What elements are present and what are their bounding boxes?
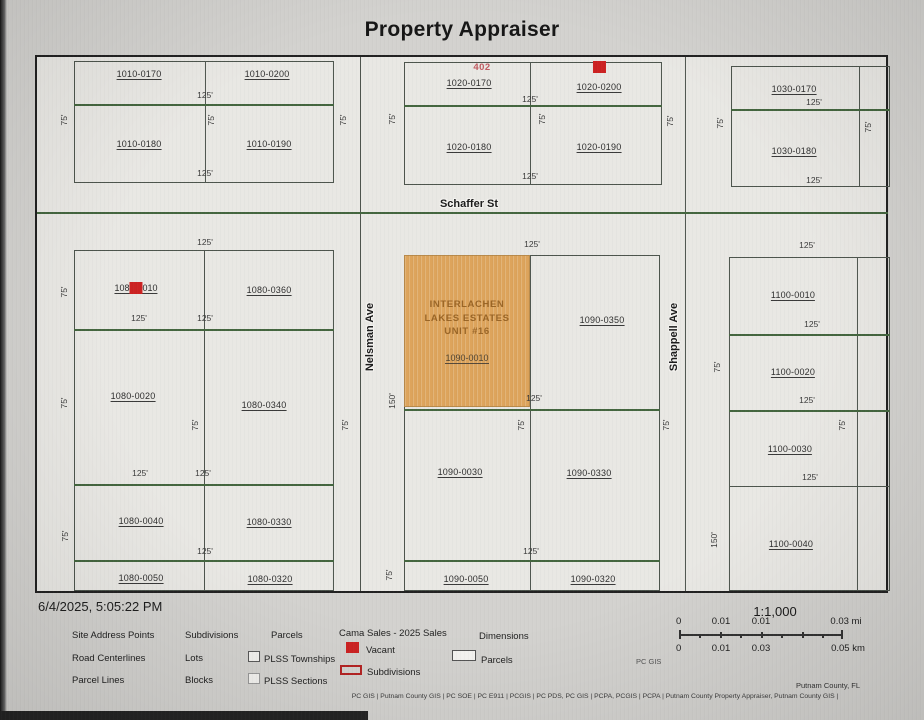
scale-bar [679, 630, 843, 642]
parcel-label-1010-0180: 1010-0180 [117, 139, 162, 150]
lot-divider [530, 255, 531, 591]
data-credits: PC GIS | Putnam County GIS | PC SOE | PC… [325, 693, 865, 700]
dimension-label: 75' [665, 115, 675, 126]
plss-townships-swatch [248, 651, 260, 662]
dimension-label: 75' [206, 114, 216, 125]
scale-tick-label: 0.03 [752, 643, 771, 654]
dimension-label: 125' [197, 313, 213, 323]
legend-plss-townships: PLSS Townships [264, 654, 335, 665]
dimension-label: 75' [384, 569, 394, 580]
dimension-label: 125' [197, 90, 213, 100]
parcel-label-1100-0030: 1100-0030 [768, 444, 812, 455]
dimension-label: 75' [712, 361, 722, 372]
dimension-label: 125' [197, 546, 213, 556]
legend-parcels-2: Parcels [481, 655, 513, 666]
dimension-label: 125' [195, 468, 211, 478]
dimension-label: 75' [59, 114, 69, 125]
dimension-label: 75' [190, 419, 200, 430]
dimension-label: 75' [661, 419, 671, 430]
lot-line-green [74, 329, 334, 331]
legend-dimensions: Dimensions [479, 631, 529, 642]
parcel-label-part: 010 [143, 283, 158, 293]
parcel-label-1080-0360: 1080-0360 [247, 285, 292, 296]
street-label-nelsman: Nelsman Ave [364, 303, 376, 371]
photo-edge-artifact [0, 711, 368, 720]
subdivisions-swatch [340, 665, 362, 675]
region-label: Putnam County, FL [745, 681, 860, 690]
parcel-label-1080-0020: 1080-0020 [111, 391, 156, 402]
dimension-label: 75' [338, 114, 348, 125]
parcel-label-1090-0330: 1090-0330 [567, 468, 612, 479]
dimension-label: 125' [806, 175, 822, 185]
legend-site-address-points: Site Address Points [72, 630, 154, 641]
dimension-label: 75' [340, 419, 350, 430]
dimension-label: 125' [197, 237, 213, 247]
parcels-swatch [452, 650, 476, 661]
dimension-label: 125' [523, 546, 539, 556]
parcel-label-1090-0320: 1090-0320 [571, 574, 616, 585]
parcel-label-1020-0200: 1020-0200 [577, 82, 622, 93]
dimension-label: 125' [522, 94, 538, 104]
lot-line-green [404, 560, 660, 562]
lot-line-green [404, 409, 660, 411]
lot-divider [530, 62, 531, 185]
dimension-label: 150' [387, 393, 397, 409]
vacant-swatch [346, 642, 359, 653]
lot-line-green [729, 334, 890, 336]
dimension-label: 125' [799, 240, 815, 250]
scale-tick-label: 0.01 [712, 616, 731, 627]
dimension-label: 125' [799, 395, 815, 405]
map-timestamp: 6/4/2025, 5:05:22 PM [38, 599, 162, 614]
scale-tick-label: 0 [676, 643, 681, 654]
parcel-label-1080-0340: 1080-0340 [242, 400, 287, 411]
scale-tick-label: 0.03 mi [830, 616, 861, 627]
dimension-label: 125' [802, 472, 818, 482]
dimension-label: 125' [197, 168, 213, 178]
block-outline-1020 [404, 62, 662, 185]
parcel-label-1090-0030: 1090-0030 [438, 467, 483, 478]
dimension-label: 75' [537, 113, 547, 124]
lot-divider [204, 250, 205, 591]
dimension-label: 75' [387, 113, 397, 124]
photo-edge-artifact [0, 0, 7, 720]
parcel-label-1010-0170: 1010-0170 [117, 69, 162, 80]
dimension-label: 75' [59, 397, 69, 408]
parcel-label-1030-0180: 1030-0180 [772, 146, 817, 157]
legend-cama-sales-header: Cama Sales - 2025 Sales [339, 628, 447, 639]
dimension-label: 125' [524, 239, 540, 249]
lot-line-green [74, 484, 334, 486]
dimension-label: 125' [132, 468, 148, 478]
dimension-label: 125' [804, 319, 820, 329]
parcel-label-1020-0180: 1020-0180 [447, 142, 492, 153]
parcel-label-1080-0320: 1080-0320 [248, 574, 293, 585]
lot-line [729, 486, 890, 487]
block-boundary-line [360, 57, 361, 591]
vacant-sale-marker [130, 282, 143, 294]
dimension-label: 75' [59, 286, 69, 297]
parcel-label-1090-0350: 1090-0350 [580, 315, 625, 326]
dimension-label: 150' [709, 532, 719, 548]
page-title: Property Appraiser [0, 18, 924, 42]
scale-tick-label: 0.01 [752, 616, 771, 627]
parcel-label-1090-0050: 1090-0050 [444, 574, 489, 585]
dimension-label: 125' [131, 313, 147, 323]
scale-tick-label: 0.01 [712, 643, 731, 654]
lot-line-green [731, 109, 890, 111]
parcel-label-part: 108 [114, 283, 129, 293]
dimension-label: 75' [837, 419, 847, 430]
subdivision-name-line: LAKES ESTATES [424, 312, 509, 326]
parcel-label-1100-0040: 1100-0040 [769, 539, 813, 550]
parcel-label-1010-0200: 1010-0200 [245, 69, 290, 80]
block-outline-1010 [74, 61, 334, 183]
legend-plss-sections: PLSS Sections [264, 676, 327, 687]
dimension-label: 75' [516, 419, 526, 430]
scale-tick-label: 0.05 km [831, 643, 865, 654]
parcel-label-1090-0010: 1090-0010 [445, 353, 488, 364]
gis-watermark: PC GIS [636, 657, 661, 666]
block-boundary-line [685, 57, 686, 591]
parcel-label-1080-0040: 1080-0040 [119, 516, 164, 527]
legend-road-centerlines: Road Centerlines [72, 653, 145, 664]
parcel-label-1080-0050: 1080-0050 [119, 573, 164, 584]
sale-number-label: 402 [473, 62, 490, 73]
map-canvas: Schaffer St Nelsman Ave Shappell Ave 101… [35, 55, 888, 593]
highlighted-subdivision-parcel: INTERLACHEN LAKES ESTATES UNIT #16 1090-… [404, 255, 530, 407]
legend-parcels: Parcels [271, 630, 303, 641]
parcel-label-1100-0020: 1100-0020 [771, 367, 815, 378]
legend-vacant: Vacant [366, 645, 395, 656]
parcel-label-1080-0330: 1080-0330 [247, 517, 292, 528]
parcel-label-1010-0190: 1010-0190 [247, 139, 292, 150]
dimension-label: 125' [806, 97, 822, 107]
plss-sections-swatch [248, 673, 260, 684]
road-centerline [37, 212, 888, 214]
scale-tick-label: 0 [676, 616, 681, 627]
parcel-label-1030-0170: 1030-0170 [772, 84, 817, 95]
lot-divider [857, 257, 858, 591]
subdivision-name-line: INTERLACHEN [430, 298, 505, 312]
dimension-label: 125' [526, 393, 542, 403]
parcel-label-1020-0170: 1020-0170 [447, 78, 492, 89]
subdivision-name-line: UNIT #16 [444, 325, 489, 339]
street-label-schaffer: Schaffer St [440, 198, 498, 210]
legend-lots: Lots [185, 653, 203, 664]
lot-line-green [74, 560, 334, 562]
lot-line-green [74, 104, 334, 106]
street-label-shappell: Shappell Ave [668, 303, 680, 371]
legend-parcel-lines: Parcel Lines [72, 675, 124, 686]
parcel-label-1080-0010: 108010 [114, 283, 157, 294]
legend-cama-subdivisions: Subdivisions [367, 667, 420, 678]
legend-blocks: Blocks [185, 675, 213, 686]
parcel-label-1100-0010: 1100-0010 [771, 290, 815, 301]
lot-line-green [404, 105, 662, 107]
lot-line-green [729, 410, 890, 412]
legend-subdivisions: Subdivisions [185, 630, 238, 641]
dimension-label: 75' [60, 530, 70, 541]
lot-divider [859, 66, 860, 187]
dimension-label: 75' [863, 121, 873, 132]
parcel-label-1020-0190: 1020-0190 [577, 142, 622, 153]
dimension-label: 125' [522, 171, 538, 181]
dimension-label: 75' [715, 117, 725, 128]
vacant-sale-marker [593, 61, 606, 73]
